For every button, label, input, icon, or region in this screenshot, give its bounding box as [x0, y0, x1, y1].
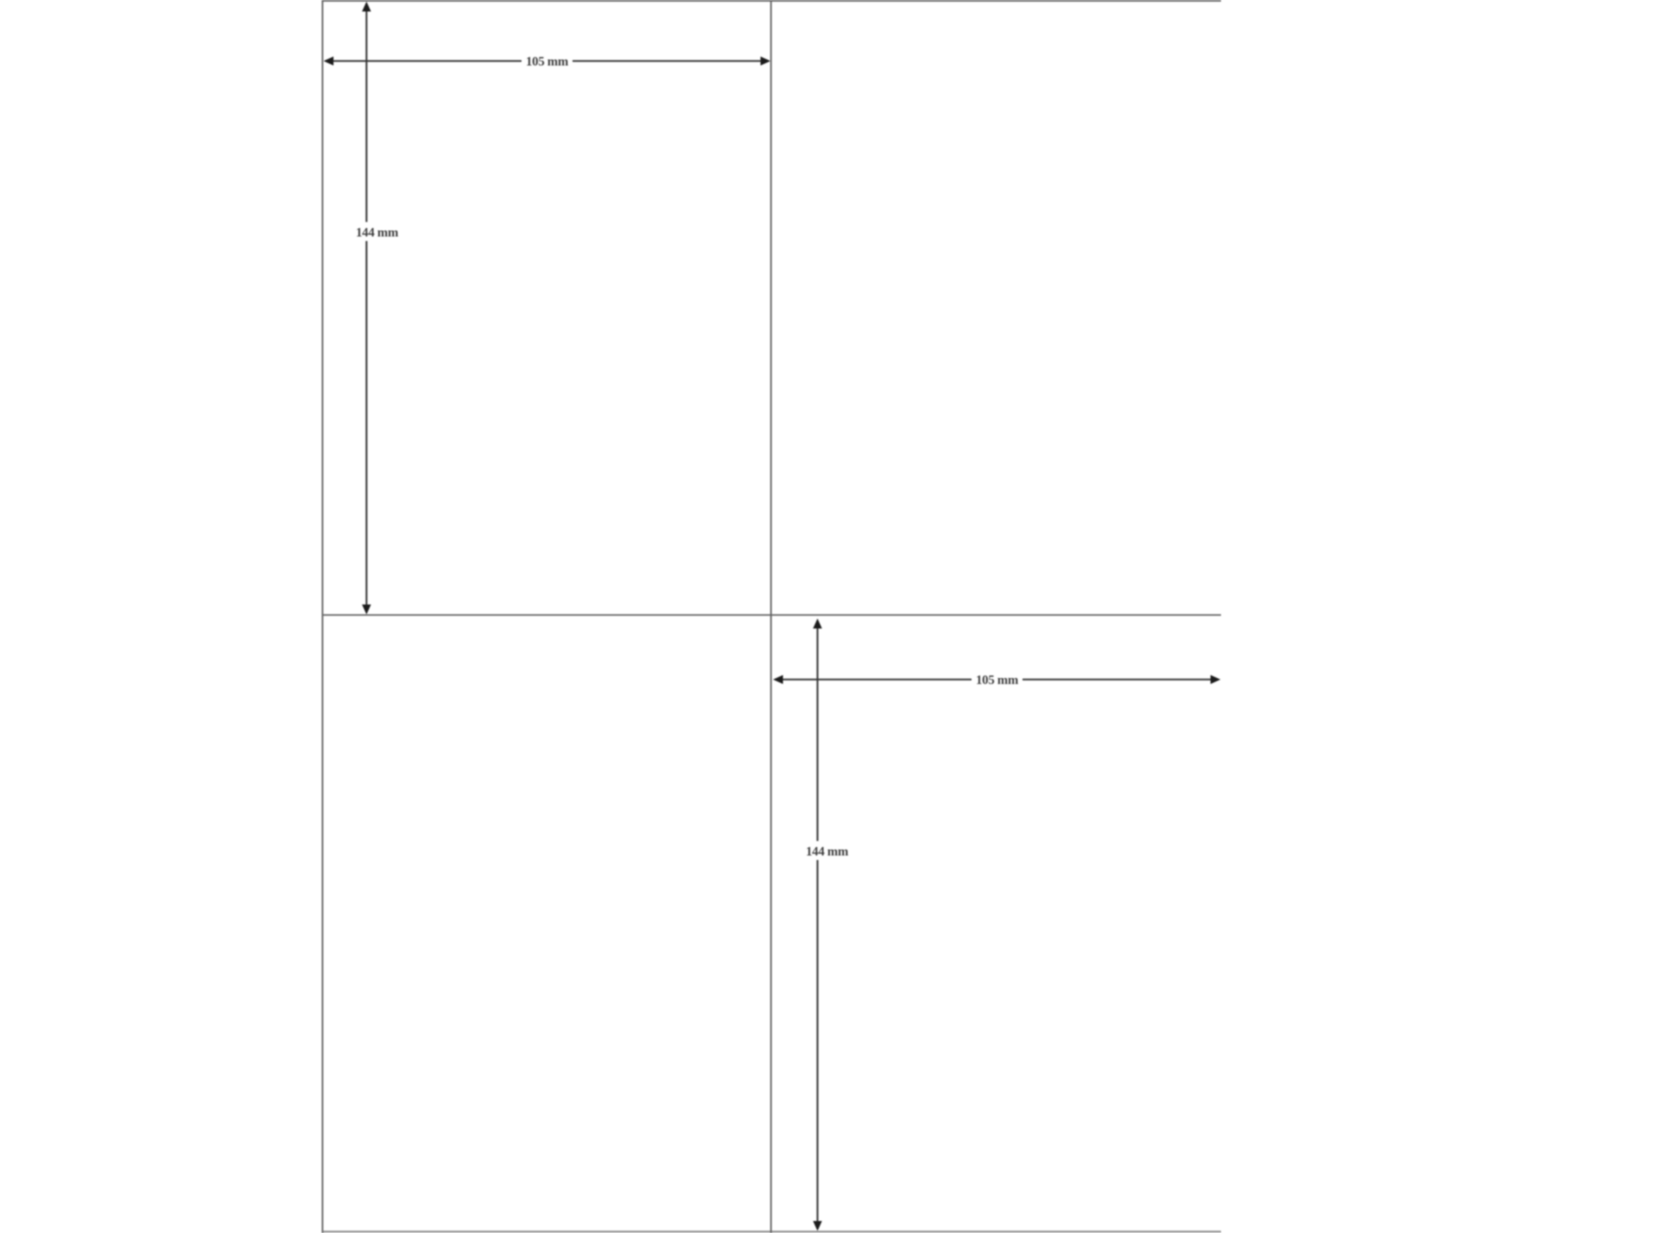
svg-text:144 mm: 144 mm: [806, 845, 849, 859]
svg-text:105 mm: 105 mm: [526, 55, 569, 69]
svg-text:105 mm: 105 mm: [976, 673, 1019, 687]
svg-text:144 mm: 144 mm: [356, 226, 399, 240]
